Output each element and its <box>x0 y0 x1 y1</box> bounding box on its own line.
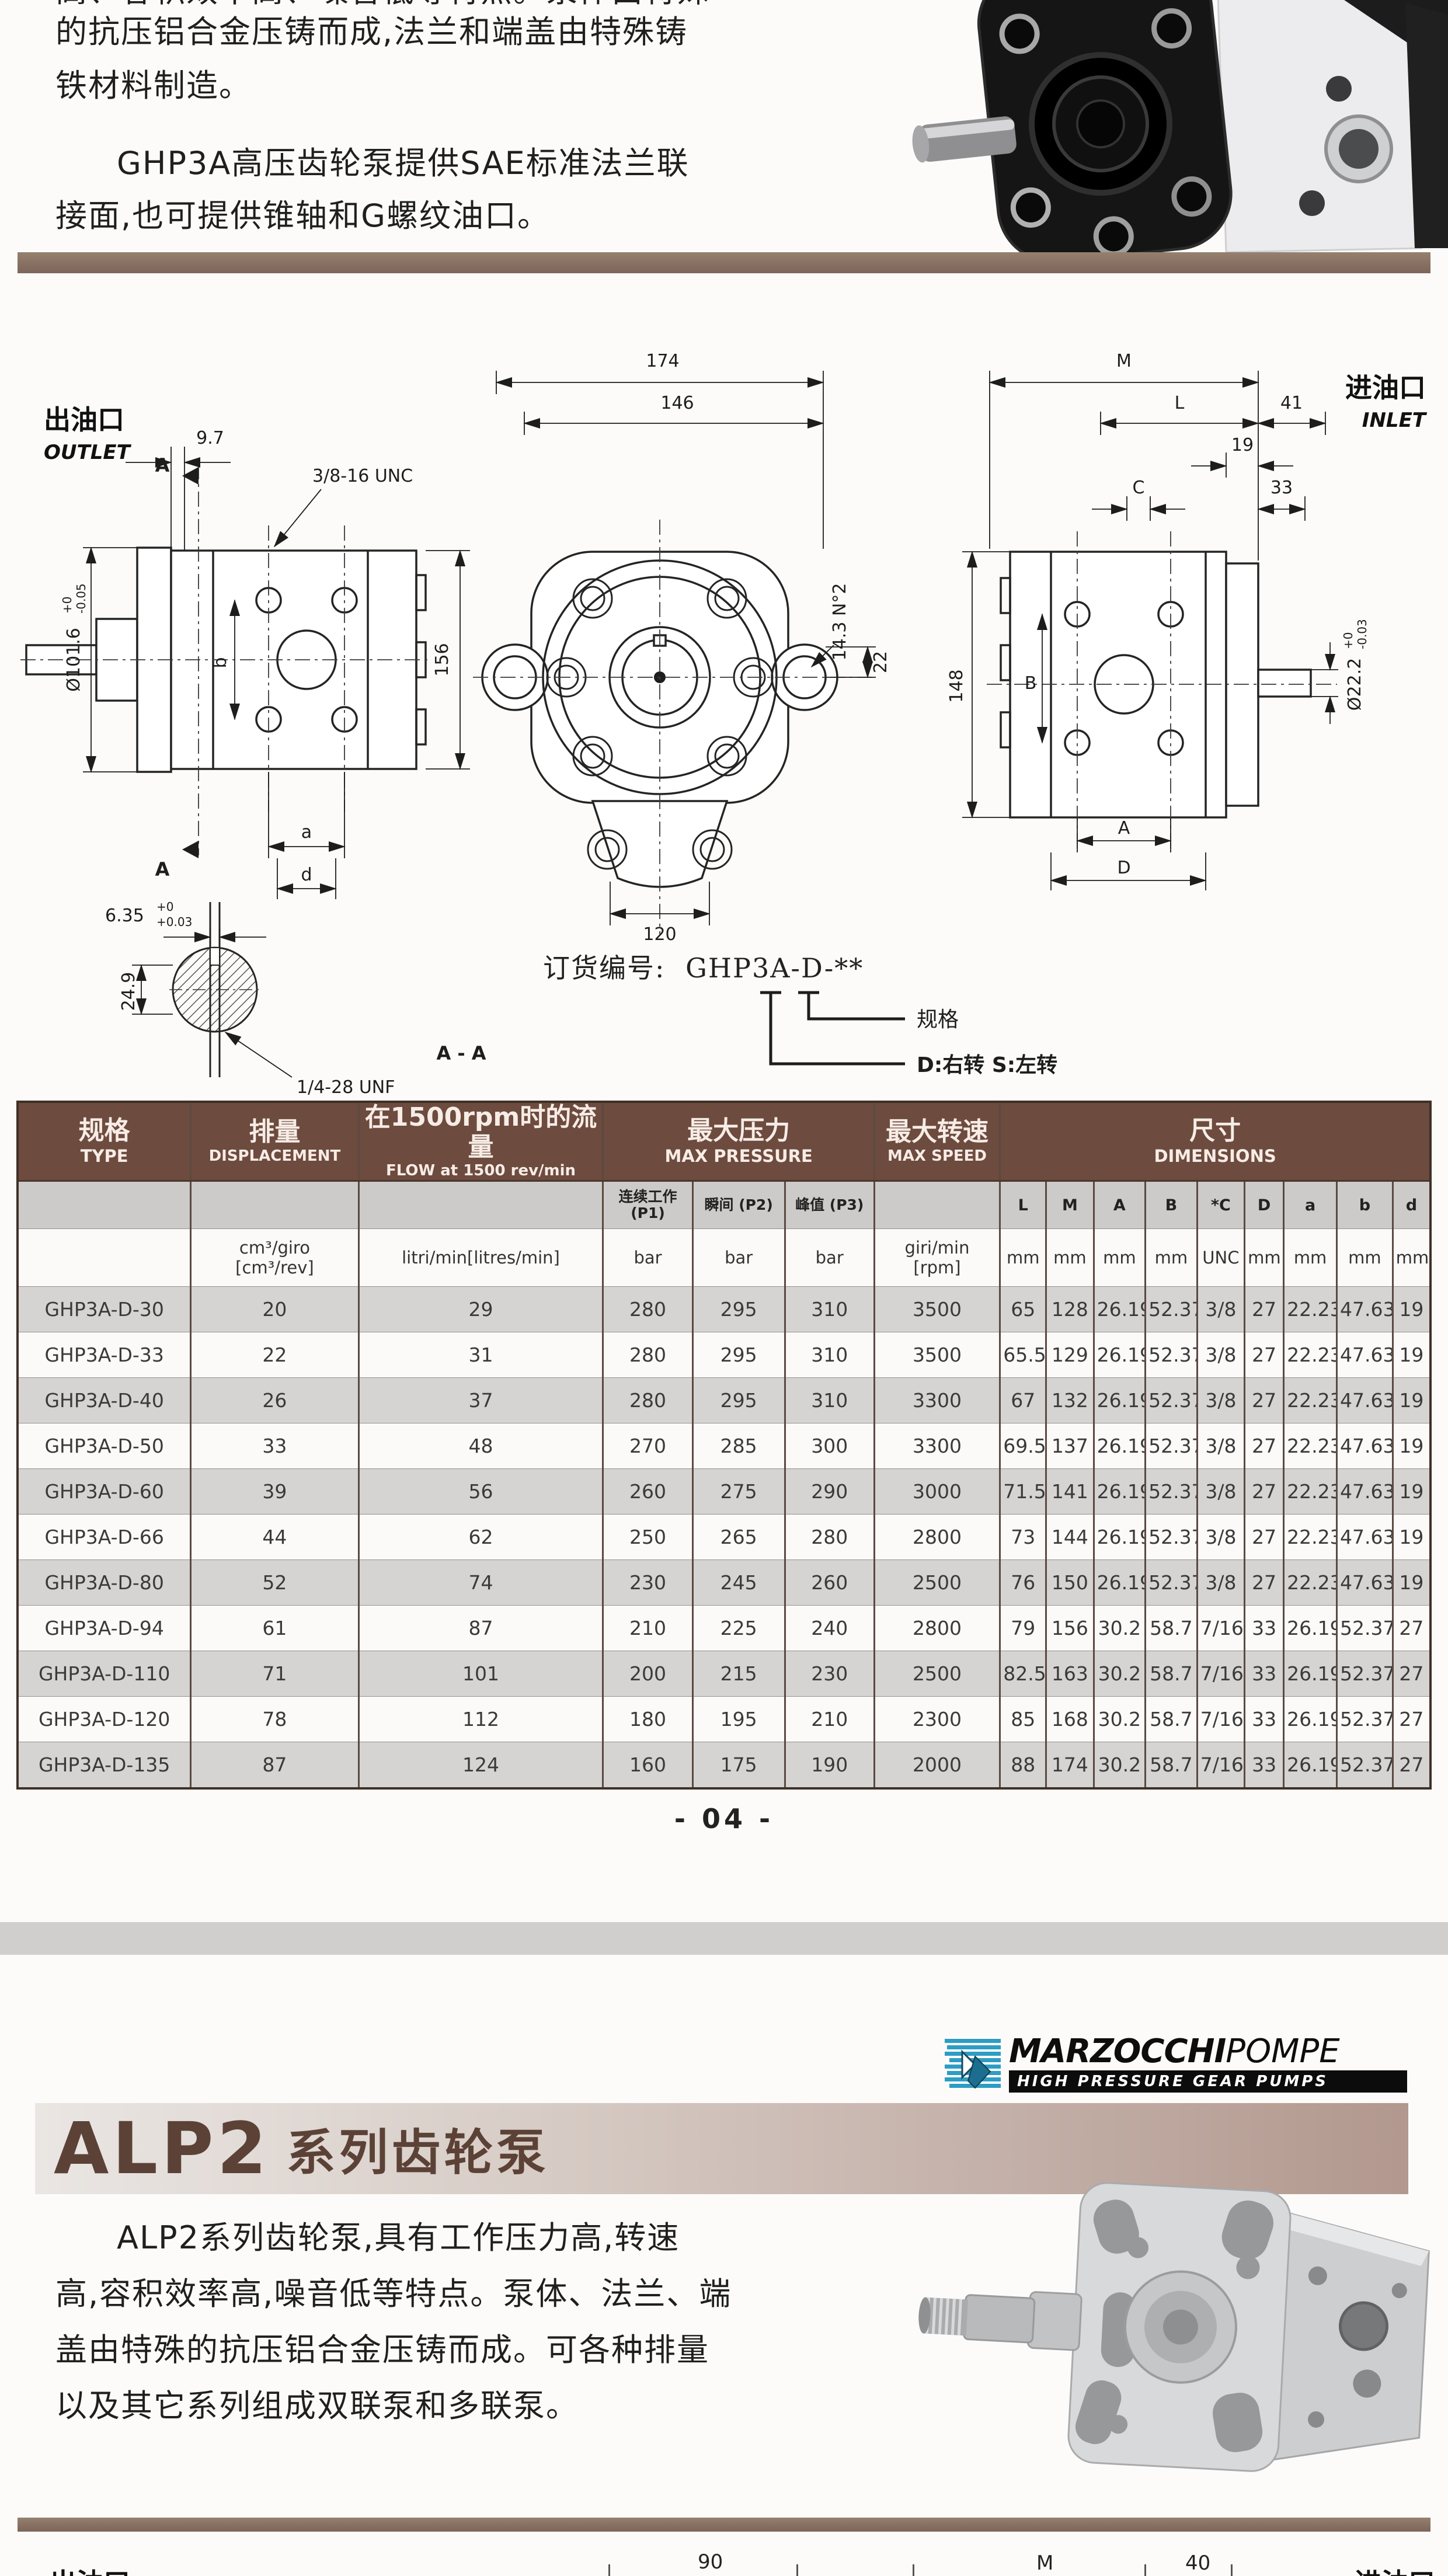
table-cell: 52.37 <box>1146 1423 1198 1469</box>
table-cell: 27 <box>1245 1332 1284 1378</box>
table-cell: GHP3A-D-94 <box>18 1606 191 1651</box>
alp2-para-line-2: 高,容积效率高,噪音低等特点。泵体、法兰、端 <box>55 2278 732 2310</box>
subcol-dim-letter: *C <box>1197 1181 1244 1229</box>
table-cell: 58.7 <box>1146 1697 1198 1742</box>
table-cell: 3/8 <box>1197 1469 1244 1515</box>
catalog-page: 高、容积效率高、噪音低等特点。泵体由特殊 的抗压铝合金压铸而成,法兰和端盖由特殊… <box>0 0 1448 2576</box>
table-cell: 156 <box>1046 1606 1094 1651</box>
table-cell: 27 <box>1393 1742 1430 1789</box>
table-cell: 27 <box>1245 1378 1284 1423</box>
table-cell: 210 <box>603 1606 692 1651</box>
table-cell: 175 <box>692 1742 785 1789</box>
table-row: GHP3A-D-80527423024526025007615026.1952.… <box>18 1560 1430 1606</box>
table-cell: 30.2 <box>1094 1742 1146 1789</box>
unit-dim: UNC <box>1197 1229 1244 1287</box>
table-cell: 27 <box>1245 1560 1284 1606</box>
technical-drawing: A A Ø101.6 +0 -0.05 9.7 3/8-16 UNC b <box>18 327 1430 1103</box>
table-cell: 141 <box>1046 1469 1094 1515</box>
unit-dim: mm <box>1284 1229 1337 1287</box>
dim-B: B <box>1025 673 1037 694</box>
table-row: GHP3A-D-332231280295310350065.512926.195… <box>18 1332 1430 1378</box>
unit-dim: mm <box>1245 1229 1284 1287</box>
marzocchi-logo-icon <box>945 2034 1003 2093</box>
table-cell: 124 <box>358 1742 603 1789</box>
table-header-row: 规格TYPE 排量DISPLACEMENT 在1500rpm时的流量FLOW a… <box>18 1102 1430 1181</box>
dia-right-sup: +0 <box>1341 632 1355 649</box>
spec-table: 规格TYPE 排量DISPLACEMENT 在1500rpm时的流量FLOW a… <box>16 1101 1432 1790</box>
col-type: 规格TYPE <box>18 1102 191 1181</box>
subcol-dim-letter: d <box>1393 1181 1430 1229</box>
dim-tick <box>608 2564 610 2576</box>
dim-22: 22 <box>871 651 891 673</box>
unit-dim: mm <box>1393 1229 1430 1287</box>
table-cell: 3000 <box>874 1469 1000 1515</box>
table-cell: 27 <box>1245 1423 1284 1469</box>
table-cell: 44 <box>191 1515 358 1560</box>
table-cell: 280 <box>603 1287 692 1332</box>
col-flow: 在1500rpm时的流量FLOW at 1500 rev/min <box>358 1102 603 1181</box>
table-cell: 74 <box>358 1560 603 1606</box>
table-cell: 52.37 <box>1146 1469 1198 1515</box>
ordering-spec-label: 规格 <box>917 1008 959 1032</box>
table-cell: 52.37 <box>1146 1560 1198 1606</box>
table-cell: 3500 <box>874 1287 1000 1332</box>
table-cell: 295 <box>692 1378 785 1423</box>
dim-M: M <box>1116 351 1132 371</box>
table-cell: 2800 <box>874 1515 1000 1560</box>
bottom-dim-M: M <box>1036 2551 1053 2575</box>
table-row: GHP3A-D-66446225026528028007314426.1952.… <box>18 1515 1430 1560</box>
table-cell: 31 <box>358 1332 603 1378</box>
alp2-model: ALP2 <box>54 2107 270 2190</box>
table-cell: 29 <box>358 1287 603 1332</box>
unit-dim: mm <box>1337 1229 1393 1287</box>
dim-33: 33 <box>1271 478 1293 498</box>
alp2-pump-photo <box>870 2181 1448 2477</box>
dim-14-3: 14.3 N°2 <box>830 583 850 661</box>
dim-148: 148 <box>946 669 967 702</box>
table-cell: 76 <box>1000 1560 1046 1606</box>
table-cell: 26.19 <box>1284 1742 1337 1789</box>
table-cell: 168 <box>1046 1697 1094 1742</box>
dim-d: d <box>301 865 312 885</box>
table-cell: 56 <box>358 1469 603 1515</box>
ordering-rotation-label: D:右转 S:左转 <box>917 1053 1057 1077</box>
unit-bar: bar <box>603 1229 692 1287</box>
table-cell: 52.37 <box>1146 1332 1198 1378</box>
subcol-p1: 连续工作 (P1) <box>603 1181 692 1229</box>
table-cell: 112 <box>358 1697 603 1742</box>
table-cell: GHP3A-D-110 <box>18 1651 191 1697</box>
table-row: GHP3A-D-1358712416017519020008817430.258… <box>18 1742 1430 1789</box>
table-cell: 2500 <box>874 1560 1000 1606</box>
table-cell: 69.5 <box>1000 1423 1046 1469</box>
table-cell: 47.63 <box>1337 1332 1393 1378</box>
col-max-speed: 最大转速MAX SPEED <box>874 1102 1000 1181</box>
intro-line-1: 的抗压铝合金压铸而成,法兰和端盖由特殊铸 <box>55 16 688 48</box>
unit-dim: mm <box>1094 1229 1146 1287</box>
table-cell: 7/16 <box>1197 1697 1244 1742</box>
table-cell: 270 <box>603 1423 692 1469</box>
unit-dim: mm <box>1046 1229 1094 1287</box>
dim-C: C <box>1133 478 1145 498</box>
col-max-pressure: 最大压力MAX PRESSURE <box>603 1102 874 1181</box>
table-cell: 79 <box>1000 1606 1046 1651</box>
table-cell: 65.5 <box>1000 1332 1046 1378</box>
dia-right-label: Ø22.2 <box>1345 658 1365 711</box>
table-cell: 290 <box>785 1469 874 1515</box>
subcol-dim-letter: L <box>1000 1181 1046 1229</box>
table-cell: 58.7 <box>1146 1742 1198 1789</box>
table-cell: 19 <box>1393 1469 1430 1515</box>
table-cell: 230 <box>785 1651 874 1697</box>
table-cell: 30.2 <box>1094 1606 1146 1651</box>
table-cell: 30.2 <box>1094 1651 1146 1697</box>
subcol-p2: 瞬间 (P2) <box>692 1181 785 1229</box>
table-cell: 2500 <box>874 1651 1000 1697</box>
table-units-row: cm³/giro[cm³/rev] litri/min[litres/min] … <box>18 1229 1430 1287</box>
table-row: GHP3A-D-603956260275290300071.514126.195… <box>18 1469 1430 1515</box>
dim-label: A <box>155 858 170 880</box>
table-row: GHP3A-D-1207811218019521023008516830.258… <box>18 1697 1430 1742</box>
table-cell: 39 <box>191 1469 358 1515</box>
pump-photo-illustration <box>870 2181 1448 2477</box>
table-cell: 19 <box>1393 1287 1430 1332</box>
table-cell: 20 <box>191 1287 358 1332</box>
table-cell: 52.37 <box>1146 1378 1198 1423</box>
table-cell: 26.19 <box>1284 1697 1337 1742</box>
table-cell: 144 <box>1046 1515 1094 1560</box>
table-cell: 275 <box>692 1469 785 1515</box>
table-cell: 82.5 <box>1000 1651 1046 1697</box>
table-cell: 19 <box>1393 1423 1430 1469</box>
table-cell: 27 <box>1393 1606 1430 1651</box>
table-cell: 7/16 <box>1197 1651 1244 1697</box>
table-cell: 200 <box>603 1651 692 1697</box>
alp2-para-line-4: 以及其它系列组成双联泵和多联泵。 <box>55 2390 579 2422</box>
table-cell: 295 <box>692 1332 785 1378</box>
table-cell: 47.63 <box>1337 1469 1393 1515</box>
table-cell: 33 <box>1245 1651 1284 1697</box>
table-cell: 163 <box>1046 1651 1094 1697</box>
table-cell: 285 <box>692 1423 785 1469</box>
intro-line-3: GHP3A高压齿轮泵提供SAE标准法兰联 <box>117 148 690 179</box>
table-cell: 174 <box>1046 1742 1094 1789</box>
dim-174: 174 <box>646 351 679 371</box>
dim-D: D <box>1117 858 1130 878</box>
dim-tick <box>1144 2564 1146 2576</box>
table-cell: 310 <box>785 1378 874 1423</box>
table-cell: 195 <box>692 1697 785 1742</box>
table-cell: 210 <box>785 1697 874 1742</box>
dim-L: L <box>1175 393 1185 413</box>
dim-tick <box>1231 2564 1233 2576</box>
subcol-dim-letter: A <box>1094 1181 1146 1229</box>
table-cell: 260 <box>785 1560 874 1606</box>
table-cell: 22.23 <box>1284 1515 1337 1560</box>
table-cell: 26.19 <box>1094 1332 1146 1378</box>
table-cell: 26.19 <box>1094 1560 1146 1606</box>
dim-9-7: 9.7 <box>196 428 224 448</box>
table-cell: 128 <box>1046 1287 1094 1332</box>
section-divider-bottom <box>18 2518 1430 2532</box>
thread-bottom-label: 1/4-28 UNF <box>297 1077 395 1098</box>
intro-cut-line: 高、容积效率高、噪音低等特点。泵体由特殊 <box>55 0 709 7</box>
table-cell: 27 <box>1245 1515 1284 1560</box>
table-cell: 27 <box>1245 1287 1284 1332</box>
table-cell: GHP3A-D-30 <box>18 1287 191 1332</box>
table-cell: 33 <box>1245 1697 1284 1742</box>
table-cell: 7/16 <box>1197 1742 1244 1789</box>
table-cell: 52.37 <box>1337 1742 1393 1789</box>
table-cell: 2800 <box>874 1606 1000 1651</box>
table-cell: GHP3A-D-80 <box>18 1560 191 1606</box>
table-cell: 27 <box>1245 1469 1284 1515</box>
alp2-title-suffix: 系列齿轮泵 <box>286 2114 549 2184</box>
table-cell: 3500 <box>874 1332 1000 1378</box>
dim-146: 146 <box>660 393 694 413</box>
table-cell: 26.19 <box>1094 1378 1146 1423</box>
table-cell: 52.37 <box>1337 1697 1393 1742</box>
table-cell: 22 <box>191 1332 358 1378</box>
table-cell: 22.23 <box>1284 1423 1337 1469</box>
table-cell: 27 <box>1393 1651 1430 1697</box>
table-cell: GHP3A-D-135 <box>18 1742 191 1789</box>
table-cell: 3/8 <box>1197 1515 1244 1560</box>
table-cell: 19 <box>1393 1560 1430 1606</box>
table-cell: GHP3A-D-33 <box>18 1332 191 1378</box>
table-cell: 87 <box>358 1606 603 1651</box>
unit-flow: litri/min[litres/min] <box>358 1229 603 1287</box>
table-cell: GHP3A-D-120 <box>18 1697 191 1742</box>
table-cell: GHP3A-D-60 <box>18 1469 191 1515</box>
subcol-dim-letter: b <box>1337 1181 1393 1229</box>
table-cell: 26.19 <box>1094 1287 1146 1332</box>
table-cell: 265 <box>692 1515 785 1560</box>
table-cell: 47.63 <box>1337 1515 1393 1560</box>
pump-photo-illustration <box>902 0 1448 252</box>
page-number: - 04 - <box>0 1803 1448 1834</box>
bottom-dim-40: 40 <box>1185 2551 1210 2575</box>
table-row: GHP3A-D-40263728029531033006713226.1952.… <box>18 1378 1430 1423</box>
unit-speed: giri/min[rpm] <box>874 1229 1000 1287</box>
table-cell: GHP3A-D-40 <box>18 1378 191 1423</box>
dim-a: a <box>301 822 312 843</box>
table-subheader-row: 连续工作 (P1) 瞬间 (P2) 峰值 (P3) LMAB*CDabd <box>18 1181 1430 1229</box>
table-cell: 310 <box>785 1332 874 1378</box>
table-cell: 30.2 <box>1094 1697 1146 1742</box>
table-cell: 61 <box>191 1606 358 1651</box>
table-cell: 280 <box>785 1515 874 1560</box>
table-cell: 26.19 <box>1094 1515 1146 1560</box>
table-cell: 26.19 <box>1094 1423 1146 1469</box>
table-cell: 47.63 <box>1337 1287 1393 1332</box>
ordering-code: 订货编号: GHP3A-D-** <box>543 947 864 986</box>
table-row: GHP3A-D-30202928029531035006512826.1952.… <box>18 1287 1430 1332</box>
table-cell: 26.19 <box>1094 1469 1146 1515</box>
dim-635-sup: +0 <box>156 900 173 914</box>
ordering-prefix: 订货编号: <box>543 952 666 984</box>
dia-left-sub: -0.05 <box>74 583 88 614</box>
table-cell: 295 <box>692 1287 785 1332</box>
alp2-para-line-1: ALP2系列齿轮泵,具有工作压力高,转速 <box>117 2222 680 2254</box>
table-cell: 52.37 <box>1337 1606 1393 1651</box>
table-cell: 58.7 <box>1146 1651 1198 1697</box>
unit-bar: bar <box>785 1229 874 1287</box>
table-cell: 160 <box>603 1742 692 1789</box>
dim-635-sub: +0.03 <box>156 915 192 929</box>
thread-top-label: 3/8-16 UNC <box>312 466 413 486</box>
table-cell: GHP3A-D-66 <box>18 1515 191 1560</box>
table-cell: 27 <box>1393 1697 1430 1742</box>
table-cell: 22.23 <box>1284 1287 1337 1332</box>
dia-left-label: Ø101.6 <box>64 628 84 692</box>
subcol-dim-letter: a <box>1284 1181 1337 1229</box>
table-cell: 129 <box>1046 1332 1094 1378</box>
section-aa-label: A - A <box>436 1042 486 1064</box>
dim-635: 6.35 <box>105 906 144 926</box>
table-cell: 26.19 <box>1284 1651 1337 1697</box>
table-cell: 3/8 <box>1197 1423 1244 1469</box>
table-cell: 52 <box>191 1560 358 1606</box>
table-cell: GHP3A-D-50 <box>18 1423 191 1469</box>
logo-brand-bold: MARZOCCHI <box>1009 2032 1226 2070</box>
table-cell: 22.23 <box>1284 1378 1337 1423</box>
table-cell: 48 <box>358 1423 603 1469</box>
table-cell: 150 <box>1046 1560 1094 1606</box>
subcol-dim-letter: B <box>1146 1181 1198 1229</box>
table-cell: 19 <box>1393 1378 1430 1423</box>
table-cell: 67 <box>1000 1378 1046 1423</box>
dim-b: b <box>210 657 231 668</box>
dim-A: A <box>1118 818 1130 838</box>
dia-left-sup: +0 <box>60 597 74 614</box>
alp2-para-line-3: 盖由特殊的抗压铝合金压铸而成。可各种排量 <box>55 2334 709 2366</box>
table-cell: 58.7 <box>1146 1606 1198 1651</box>
table-cell: 225 <box>692 1606 785 1651</box>
unit-dim: mm <box>1000 1229 1046 1287</box>
dim-tick <box>913 2564 914 2576</box>
table-cell: 19 <box>1393 1332 1430 1378</box>
table-cell: 47.63 <box>1337 1378 1393 1423</box>
col-displacement: 排量DISPLACEMENT <box>191 1102 358 1181</box>
unit-displacement: cm³/giro[cm³/rev] <box>191 1229 358 1287</box>
table-cell: 62 <box>358 1515 603 1560</box>
table-cell: 26 <box>191 1378 358 1423</box>
table-cell: 280 <box>603 1332 692 1378</box>
table-cell: 230 <box>603 1560 692 1606</box>
unit-dim: mm <box>1146 1229 1198 1287</box>
table-cell: 3/8 <box>1197 1332 1244 1378</box>
table-cell: 47.63 <box>1337 1423 1393 1469</box>
table-cell: 52.37 <box>1146 1515 1198 1560</box>
dim-249: 24.9 <box>119 972 139 1011</box>
table-cell: 33 <box>1245 1606 1284 1651</box>
table-cell: 180 <box>603 1697 692 1742</box>
table-cell: 215 <box>692 1651 785 1697</box>
intro-line-4: 接面,也可提供锥轴和G螺纹油口。 <box>55 200 550 232</box>
logo-tagline-bar: HIGH PRESSURE GEAR PUMPS <box>1009 2070 1407 2093</box>
table-cell: 71 <box>191 1651 358 1697</box>
table-cell: 2300 <box>874 1697 1000 1742</box>
table-cell: 3/8 <box>1197 1378 1244 1423</box>
dim-19: 19 <box>1231 435 1254 455</box>
table-cell: 101 <box>358 1651 603 1697</box>
table-cell: 85 <box>1000 1697 1046 1742</box>
page-separator-band <box>0 1922 1448 1955</box>
dim-tick <box>796 2564 798 2576</box>
logo-brand-light: POMPE <box>1226 2032 1339 2070</box>
subcol-dim-letter: M <box>1046 1181 1094 1229</box>
subcol-p3: 峰值 (P3) <box>785 1181 874 1229</box>
logo-tagline: HIGH PRESSURE GEAR PUMPS <box>1017 2073 1328 2090</box>
subcol-dim-letter: D <box>1245 1181 1284 1229</box>
table-cell: 71.5 <box>1000 1469 1046 1515</box>
dia-right-sub: -0.03 <box>1355 619 1369 649</box>
table-cell: 3/8 <box>1197 1287 1244 1332</box>
section-divider-top <box>18 252 1430 273</box>
table-row: GHP3A-D-503348270285300330069.513726.195… <box>18 1423 1430 1469</box>
table-cell: 3300 <box>874 1423 1000 1469</box>
table-cell: 22.23 <box>1284 1332 1337 1378</box>
intro-line-2: 铁材料制造。 <box>55 70 252 102</box>
table-cell: 87 <box>191 1742 358 1789</box>
table-cell: 19 <box>1393 1515 1430 1560</box>
table-cell: 26.19 <box>1284 1606 1337 1651</box>
unit-bar: bar <box>692 1229 785 1287</box>
table-cell: 310 <box>785 1287 874 1332</box>
table-cell: 65 <box>1000 1287 1046 1332</box>
table-cell: 2000 <box>874 1742 1000 1789</box>
dim-41: 41 <box>1280 393 1303 413</box>
table-body: GHP3A-D-30202928029531035006512826.1952.… <box>18 1287 1430 1789</box>
dim-156: 156 <box>432 643 452 676</box>
bottom-inlet-label: 进油口 <box>1355 2562 1435 2576</box>
table-cell: 52.37 <box>1146 1287 1198 1332</box>
table-row: GHP3A-D-11071101200215230250082.516330.2… <box>18 1651 1430 1697</box>
table-cell: 33 <box>1245 1742 1284 1789</box>
table-cell: 300 <box>785 1423 874 1469</box>
table-cell: 7/16 <box>1197 1606 1244 1651</box>
table-row: GHP3A-D-94618721022524028007915630.258.7… <box>18 1606 1430 1651</box>
logo-brand: MARZOCCHIPOMPE <box>1009 2035 1407 2068</box>
table-cell: 132 <box>1046 1378 1094 1423</box>
table-cell: 280 <box>603 1378 692 1423</box>
bottom-dim-90: 90 <box>698 2550 723 2574</box>
table-cell: 22.23 <box>1284 1469 1337 1515</box>
dim-label: A <box>155 454 170 476</box>
table-cell: 52.37 <box>1337 1651 1393 1697</box>
table-cell: 240 <box>785 1606 874 1651</box>
table-cell: 250 <box>603 1515 692 1560</box>
ghp3a-pump-photo <box>902 0 1448 252</box>
marzocchi-logo: MARZOCCHIPOMPE HIGH PRESSURE GEAR PUMPS <box>945 2034 1407 2093</box>
table-cell: 78 <box>191 1697 358 1742</box>
col-dimensions: 尺寸DIMENSIONS <box>1000 1102 1430 1181</box>
table-cell: 47.63 <box>1337 1560 1393 1606</box>
table-cell: 190 <box>785 1742 874 1789</box>
ordering-branch-lines <box>760 993 905 1064</box>
ordering-code-value: GHP3A-D-** <box>685 952 864 984</box>
table-cell: 3300 <box>874 1378 1000 1423</box>
table-cell: 73 <box>1000 1515 1046 1560</box>
table-cell: 260 <box>603 1469 692 1515</box>
bottom-outlet-label: 出油口 <box>50 2562 130 2576</box>
table-cell: 245 <box>692 1560 785 1606</box>
table-cell: 137 <box>1046 1423 1094 1469</box>
table-cell: 33 <box>191 1423 358 1469</box>
table-cell: 3/8 <box>1197 1560 1244 1606</box>
